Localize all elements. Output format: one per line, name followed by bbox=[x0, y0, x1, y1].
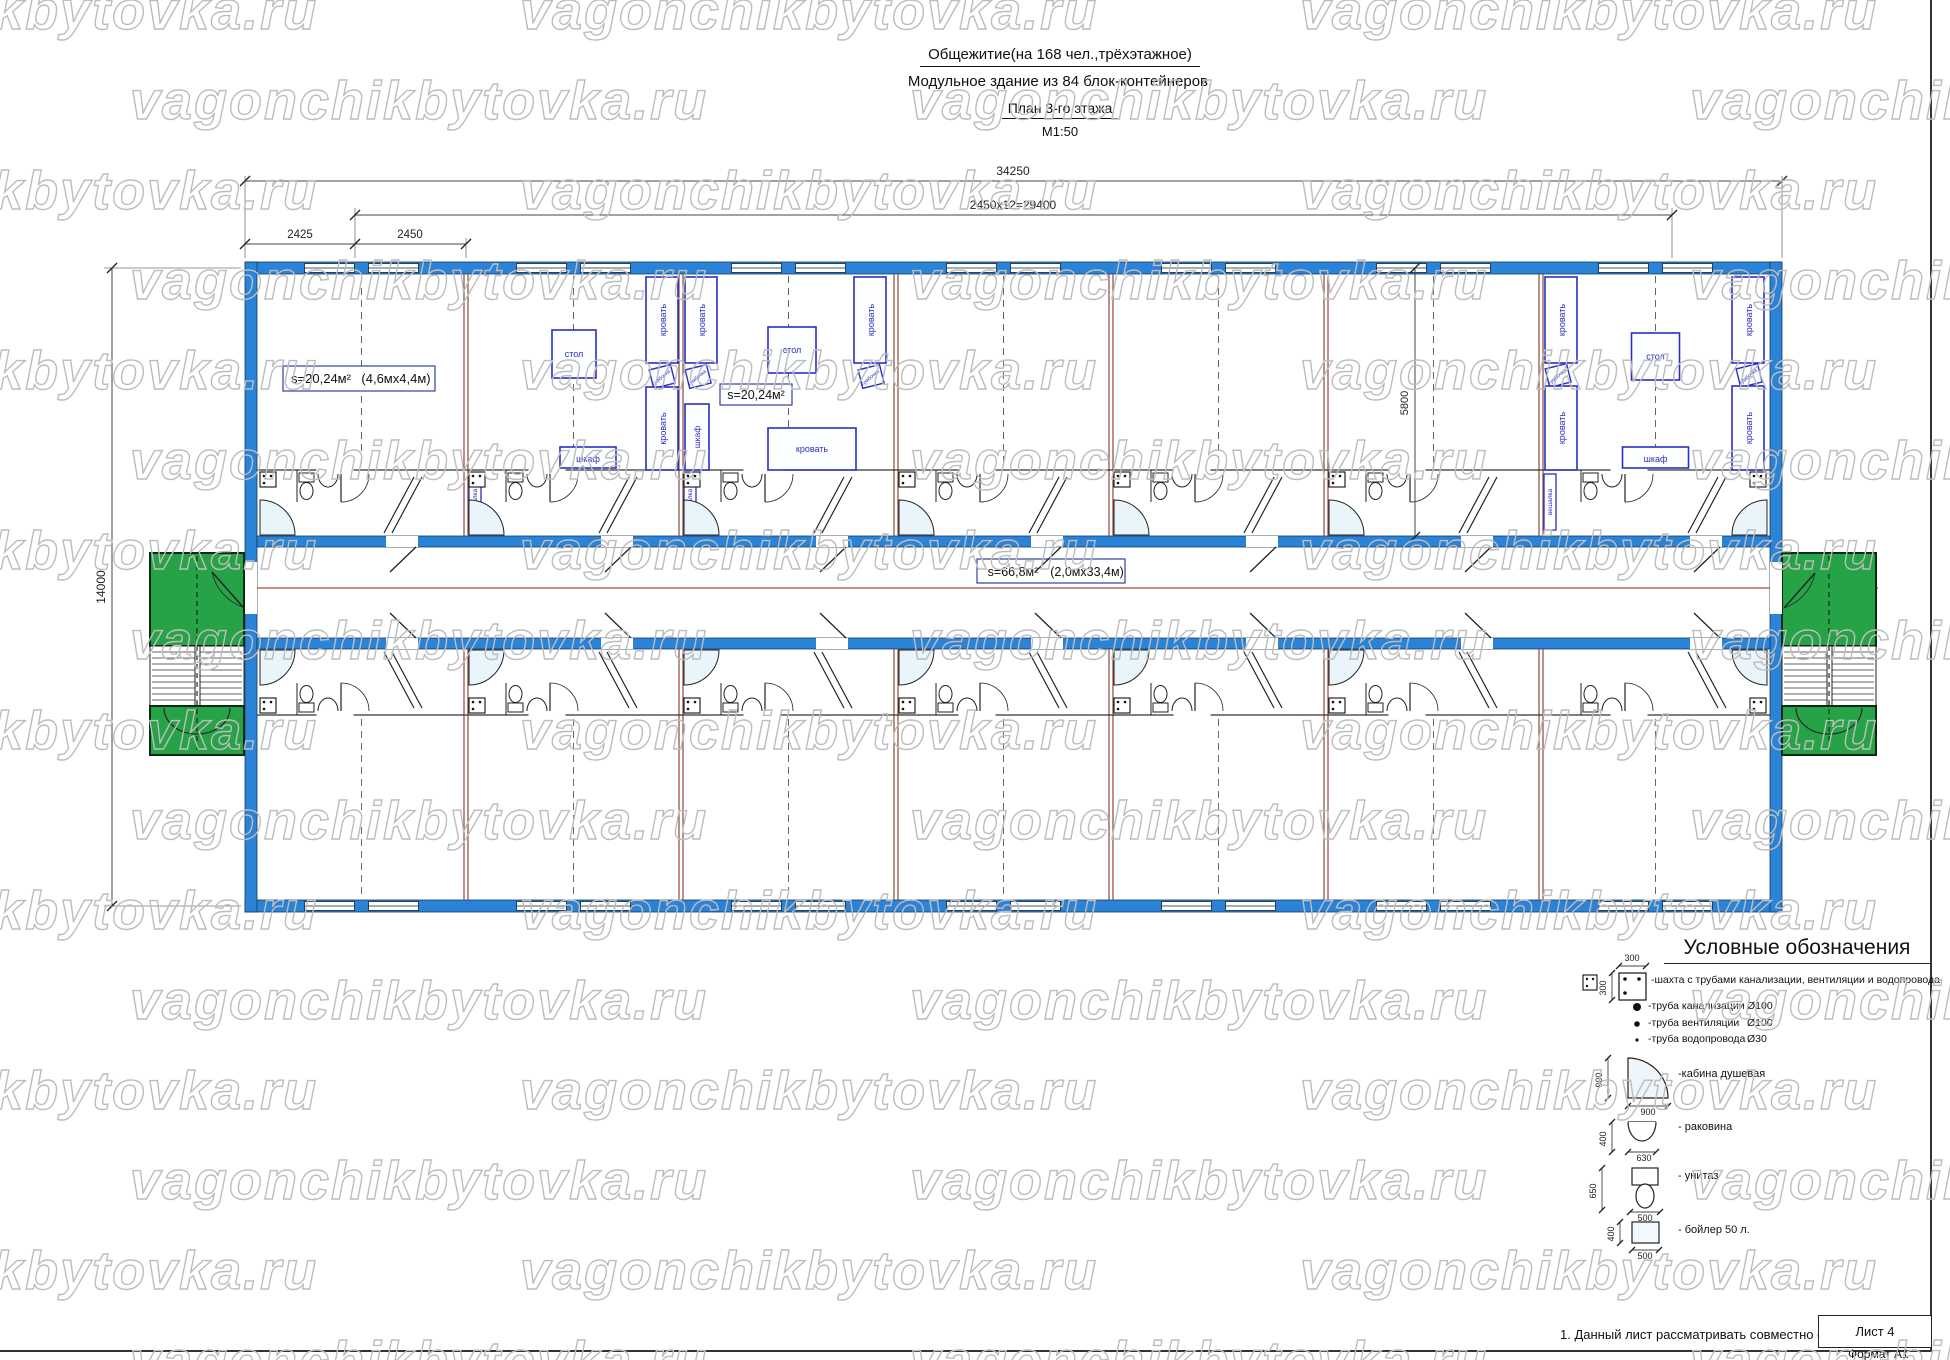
bed-label: кровать bbox=[658, 304, 668, 337]
shaft-symbol bbox=[899, 472, 915, 487]
corridor-area-label: s=66,8м² bbox=[988, 565, 1039, 579]
legend-boiler-label: - бойлер 50 л. bbox=[1678, 1224, 1750, 1236]
toilet-tank bbox=[1583, 473, 1598, 482]
bed-label: кровать bbox=[866, 304, 876, 337]
drawing-subtitle: Модульное здание из 84 блок-контейнеров. bbox=[870, 73, 1250, 90]
legend-shower-label: -кабина душевая bbox=[1678, 1068, 1765, 1080]
legend-shaft-large bbox=[1619, 973, 1646, 1000]
angled-wall bbox=[1029, 652, 1059, 708]
pipe-dot bbox=[479, 475, 482, 478]
door-leaf bbox=[820, 613, 846, 638]
angled-wall bbox=[1467, 652, 1497, 708]
door-swing bbox=[980, 683, 1008, 711]
bed-label: кровать bbox=[1744, 304, 1754, 337]
angled-wall bbox=[1688, 652, 1718, 708]
shaft-symbol bbox=[1750, 472, 1766, 487]
pipe-dot bbox=[1753, 482, 1756, 485]
pipe-dot bbox=[263, 701, 266, 704]
sheet-number-box: Лист 4 bbox=[1818, 1315, 1932, 1348]
angled-wall bbox=[1696, 477, 1726, 533]
door-gap bbox=[1690, 536, 1722, 547]
angled-wall bbox=[1459, 477, 1489, 533]
stair-door-gap bbox=[1770, 562, 1782, 614]
shaft-symbol bbox=[1329, 698, 1345, 713]
angled-wall bbox=[384, 477, 414, 533]
toilet-bowl bbox=[1369, 483, 1382, 500]
door-gap bbox=[1246, 638, 1278, 649]
pipe-dot bbox=[472, 482, 475, 485]
legend-shower-dim-h: 900 bbox=[1594, 1072, 1604, 1087]
legend-boiler-dim-h: 400 bbox=[1606, 1226, 1616, 1241]
sink bbox=[1602, 698, 1622, 711]
angled-wall bbox=[814, 652, 844, 708]
toilet-bowl bbox=[1154, 483, 1167, 500]
pipe-dot bbox=[479, 701, 482, 704]
pipe-dot bbox=[909, 701, 912, 704]
pipe-dot bbox=[1117, 482, 1120, 485]
table-label: стол bbox=[783, 345, 802, 355]
pipe-dot bbox=[263, 475, 266, 478]
door-gap bbox=[386, 638, 418, 649]
wardrobe-label: шкаф bbox=[1644, 454, 1668, 464]
shaft-symbol bbox=[1114, 698, 1130, 713]
shower bbox=[1329, 500, 1364, 535]
shower bbox=[1114, 650, 1149, 685]
legend-shaft-small bbox=[1583, 975, 1597, 990]
toilet-tank bbox=[508, 703, 523, 712]
door-leaf bbox=[605, 613, 631, 638]
toilet-bowl bbox=[724, 686, 737, 703]
toilet-bowl bbox=[1154, 686, 1167, 703]
shower bbox=[899, 500, 934, 535]
angled-wall bbox=[1696, 652, 1726, 708]
angled-wall bbox=[1252, 477, 1282, 533]
pipe-dot bbox=[902, 482, 905, 485]
angled-wall bbox=[1459, 652, 1489, 708]
bed-label: кровать bbox=[1557, 412, 1567, 445]
legend-sink bbox=[1628, 1122, 1656, 1141]
shaft-symbol bbox=[469, 698, 485, 713]
toilet-bowl bbox=[939, 686, 952, 703]
angled-wall bbox=[1467, 477, 1497, 533]
legend-toilet-bowl bbox=[1636, 1184, 1654, 1208]
angled-wall bbox=[814, 477, 844, 533]
shower bbox=[1114, 500, 1149, 535]
door-leaf bbox=[1035, 613, 1061, 638]
pipe-dot bbox=[1753, 701, 1756, 704]
legend-pipe-dia: Ø100 bbox=[1747, 1000, 1773, 1012]
legend-pipe-dia: Ø100 bbox=[1747, 1017, 1773, 1029]
legend-shaft-label: -шахта с трубами канализации, вентиляции… bbox=[1651, 974, 1940, 986]
door-swing bbox=[1195, 683, 1223, 711]
pipe-dot bbox=[687, 482, 690, 485]
pipe-dot bbox=[1760, 475, 1763, 478]
toilet-tank bbox=[508, 473, 523, 482]
pipe-bullet-vent bbox=[1634, 1021, 1640, 1027]
sink bbox=[742, 474, 762, 487]
shower bbox=[684, 500, 719, 535]
legend-shaft-dim-w: 300 bbox=[1624, 953, 1639, 963]
pipe-dot bbox=[1332, 482, 1335, 485]
sink bbox=[1602, 474, 1622, 487]
sink bbox=[1387, 698, 1407, 711]
bed-label: кровать bbox=[796, 444, 829, 454]
pipe-dot bbox=[472, 475, 475, 478]
toilet-tank bbox=[1583, 703, 1598, 712]
angled-wall bbox=[1688, 477, 1718, 533]
door-gap bbox=[1031, 638, 1063, 649]
door-leaf bbox=[1465, 613, 1491, 638]
angled-wall bbox=[607, 652, 637, 708]
toilet-bowl bbox=[1369, 686, 1382, 703]
angled-wall bbox=[599, 477, 629, 533]
pipe-dot bbox=[270, 475, 273, 478]
stair-door-gap bbox=[245, 562, 257, 614]
door-leaf bbox=[1465, 547, 1491, 572]
dim-total: 34250 bbox=[996, 164, 1030, 178]
bed-label: кровать bbox=[1744, 412, 1754, 445]
sink bbox=[742, 698, 762, 711]
pipe-dot bbox=[902, 708, 905, 711]
toilet-tank bbox=[299, 473, 314, 482]
floor-plan-canvas: столшкафкроватьтумбочкакроватьвешалкакро… bbox=[0, 0, 1950, 1360]
room-area-label: s=20,24м² bbox=[727, 388, 785, 402]
shaft-symbol bbox=[469, 472, 485, 487]
shower bbox=[899, 650, 934, 685]
legend-sink-label: - раковина bbox=[1678, 1121, 1732, 1133]
door-leaf bbox=[1694, 613, 1720, 638]
sink bbox=[957, 698, 977, 711]
legend-boiler bbox=[1632, 1222, 1659, 1243]
door-swing bbox=[1195, 474, 1223, 502]
angled-wall bbox=[1037, 652, 1067, 708]
angled-wall bbox=[1244, 652, 1274, 708]
sink bbox=[957, 474, 977, 487]
dim-module: 2450 bbox=[397, 229, 423, 241]
toilet-bowl bbox=[300, 686, 313, 703]
pipe-dot bbox=[263, 708, 266, 711]
sink bbox=[1172, 698, 1192, 711]
wardrobe-label: шкаф bbox=[692, 426, 702, 448]
door-swing bbox=[341, 683, 369, 711]
legend-pipe-row: -труба водопровода Ø30 bbox=[1648, 1033, 1793, 1045]
shaft-symbol bbox=[1750, 698, 1766, 713]
door-swing bbox=[550, 474, 578, 502]
pipe-dot bbox=[1332, 708, 1335, 711]
pipe-dot bbox=[1332, 475, 1335, 478]
toilet-bowl bbox=[1584, 483, 1597, 500]
angled-wall bbox=[384, 652, 414, 708]
angled-wall bbox=[1037, 477, 1067, 533]
angled-wall bbox=[1029, 477, 1059, 533]
toilet-tank bbox=[1153, 473, 1168, 482]
sink bbox=[318, 698, 338, 711]
pipe-dot bbox=[1332, 701, 1335, 704]
shaft-symbol bbox=[684, 472, 700, 487]
legend-shaft-dim-h: 300 bbox=[1598, 980, 1608, 995]
angled-wall bbox=[1244, 477, 1274, 533]
dim-modules: 2450x12=29400 bbox=[970, 198, 1057, 212]
door-gap bbox=[1690, 638, 1722, 649]
pipe-dot bbox=[902, 701, 905, 704]
door-gap bbox=[816, 638, 848, 649]
door-leaf bbox=[605, 547, 631, 572]
pipe-dot bbox=[1339, 701, 1342, 704]
legend-shower-dim-w: 900 bbox=[1640, 1107, 1655, 1117]
toilet-bowl bbox=[300, 483, 313, 500]
door-leaf bbox=[390, 547, 416, 572]
angled-wall bbox=[392, 652, 422, 708]
pipe-dot bbox=[1623, 977, 1627, 981]
plan-name: План 3-го этажа bbox=[1002, 100, 1119, 119]
pipe-dot bbox=[472, 708, 475, 711]
wardrobe-label: шкаф bbox=[576, 454, 600, 464]
toilet-bowl bbox=[1584, 686, 1597, 703]
toilet-tank bbox=[723, 473, 738, 482]
legend-pipe-row: -труба вентиляции Ø100 bbox=[1648, 1017, 1793, 1029]
pipe-dot bbox=[694, 475, 697, 478]
legend-toilet-dim-h: 650 bbox=[1588, 1183, 1598, 1198]
legend-toilet-label: - унитаз bbox=[1678, 1170, 1718, 1182]
toilet-bowl bbox=[509, 686, 522, 703]
sink bbox=[1387, 474, 1407, 487]
door-gap bbox=[1246, 536, 1278, 547]
shower bbox=[1732, 650, 1767, 685]
pipe-dot bbox=[1586, 978, 1588, 980]
pipe-bullet-sewer bbox=[1633, 1003, 1641, 1011]
shower bbox=[469, 650, 504, 685]
pipe-dot bbox=[1117, 701, 1120, 704]
pipe-dot bbox=[1339, 475, 1342, 478]
shower bbox=[1329, 650, 1364, 685]
angled-wall bbox=[822, 652, 852, 708]
legend-toilet-tank bbox=[1632, 1168, 1658, 1185]
table-label: стол bbox=[565, 349, 584, 359]
page-border-right bbox=[1930, 0, 1932, 1351]
toilet-tank bbox=[723, 703, 738, 712]
sink bbox=[527, 698, 547, 711]
corridor-wall-top bbox=[257, 536, 1770, 547]
sink bbox=[1172, 474, 1192, 487]
sink bbox=[318, 474, 338, 487]
door-swing bbox=[1410, 474, 1438, 502]
pipe-dot bbox=[270, 701, 273, 704]
door-gap bbox=[816, 536, 848, 547]
angled-wall bbox=[599, 652, 629, 708]
legend-title: Условные обозначения bbox=[1664, 936, 1930, 964]
door-gap bbox=[601, 638, 633, 649]
shaft-symbol bbox=[684, 698, 700, 713]
legend-boiler-dim-w: 500 bbox=[1637, 1251, 1652, 1261]
pipe-dot bbox=[687, 701, 690, 704]
pipe-dot bbox=[472, 701, 475, 704]
pipe-dot bbox=[687, 708, 690, 711]
legend-shower bbox=[1628, 1058, 1668, 1098]
door-gap bbox=[1461, 638, 1493, 649]
drawing-title: Общежитие(на 168 чел.,трёхэтажное) bbox=[920, 46, 1200, 67]
toilet-bowl bbox=[939, 483, 952, 500]
door-swing bbox=[765, 474, 793, 502]
door-leaf bbox=[1250, 547, 1276, 572]
pipe-dot bbox=[909, 475, 912, 478]
legend-pipe-label: -труба водопровода bbox=[1648, 1033, 1745, 1045]
legend-pipe-dia: Ø30 bbox=[1747, 1033, 1767, 1045]
angled-wall bbox=[607, 477, 637, 533]
pipe-dot bbox=[694, 701, 697, 704]
door-gap bbox=[386, 536, 418, 547]
door-gap bbox=[601, 536, 633, 547]
plan-scale: М1:50 bbox=[870, 124, 1250, 139]
hanger-label: вешалка bbox=[1547, 489, 1554, 516]
pipe-dot bbox=[1124, 475, 1127, 478]
pipe-dot bbox=[1637, 977, 1641, 981]
corridor-size-label: (2,0мх33,4м) bbox=[1050, 565, 1123, 579]
shower bbox=[684, 650, 719, 685]
shaft-symbol bbox=[899, 698, 915, 713]
pipe-dot bbox=[1753, 708, 1756, 711]
toilet-tank bbox=[299, 703, 314, 712]
door-leaf bbox=[820, 547, 846, 572]
shower bbox=[1732, 500, 1767, 535]
door-leaf bbox=[390, 613, 416, 638]
pipe-dot bbox=[902, 475, 905, 478]
pipe-dot bbox=[1117, 708, 1120, 711]
legend-sink-dim-h: 400 bbox=[1598, 1131, 1608, 1146]
toilet-bowl bbox=[724, 483, 737, 500]
door-swing bbox=[1410, 683, 1438, 711]
pipe-dot bbox=[263, 482, 266, 485]
shaft-symbol bbox=[1114, 472, 1130, 487]
door-gap bbox=[1031, 536, 1063, 547]
toilet-tank bbox=[1368, 703, 1383, 712]
door-swing bbox=[980, 474, 1008, 502]
door-swing bbox=[1625, 474, 1653, 502]
title-block: Общежитие(на 168 чел.,трёхэтажное) Модул… bbox=[870, 46, 1250, 139]
pipe-dot bbox=[1592, 978, 1594, 980]
sheet-format: Формат А1 bbox=[1848, 1347, 1909, 1360]
legend-pipe-label: -труба вентиляции bbox=[1648, 1017, 1739, 1029]
shower bbox=[469, 500, 504, 535]
door-leaf bbox=[1694, 547, 1720, 572]
door-swing bbox=[341, 474, 369, 502]
page-border-bottom bbox=[0, 1350, 1932, 1352]
door-swing bbox=[550, 683, 578, 711]
pipe-dot bbox=[1124, 701, 1127, 704]
room-area-label: s=20,24м² bbox=[291, 371, 352, 386]
shaft-symbol bbox=[1329, 472, 1345, 487]
toilet-tank bbox=[938, 473, 953, 482]
bed-label: кровать bbox=[697, 304, 707, 337]
door-swing bbox=[1625, 683, 1653, 711]
pipe-dot bbox=[1760, 701, 1763, 704]
legend-pipe-label: -труба канализации bbox=[1648, 1000, 1745, 1012]
angled-wall bbox=[822, 477, 852, 533]
toilet-tank bbox=[938, 703, 953, 712]
legend-pipe-row: -труба канализации Ø100 bbox=[1648, 1000, 1793, 1012]
shaft-symbol bbox=[260, 698, 276, 713]
drawing-sheet: столшкафкроватьтумбочкакроватьвешалкакро… bbox=[0, 0, 1950, 1360]
toilet-bowl bbox=[509, 483, 522, 500]
toilet-tank bbox=[1153, 703, 1168, 712]
dim-end-module: 2425 bbox=[287, 229, 313, 241]
pipe-dot bbox=[1753, 475, 1756, 478]
shower bbox=[260, 500, 295, 535]
pipe-dot bbox=[1117, 475, 1120, 478]
shaft-symbol bbox=[260, 472, 276, 487]
toilet-tank bbox=[1368, 473, 1383, 482]
pipe-dot bbox=[1586, 985, 1588, 987]
pipe-dot bbox=[1623, 991, 1627, 995]
bed-label: кровать bbox=[1557, 304, 1567, 337]
pipe-dot bbox=[687, 475, 690, 478]
pipe-bullet-water bbox=[1635, 1038, 1638, 1041]
door-swing bbox=[765, 683, 793, 711]
door-leaf bbox=[1250, 613, 1276, 638]
legend-sink-dim-w: 630 bbox=[1636, 1153, 1651, 1163]
table-label: стол bbox=[1646, 352, 1665, 362]
bed-label: кровать bbox=[658, 412, 668, 445]
corridor-wall-bottom bbox=[257, 638, 1770, 649]
angled-wall bbox=[392, 477, 422, 533]
sink bbox=[527, 474, 547, 487]
room-size-label: (4,6мх4,4м) bbox=[361, 371, 430, 386]
dim-room-depth: 5800 bbox=[1399, 391, 1411, 415]
angled-wall bbox=[1252, 652, 1282, 708]
dim-depth: 14000 bbox=[94, 570, 108, 604]
shower bbox=[260, 650, 295, 685]
door-gap bbox=[1461, 536, 1493, 547]
